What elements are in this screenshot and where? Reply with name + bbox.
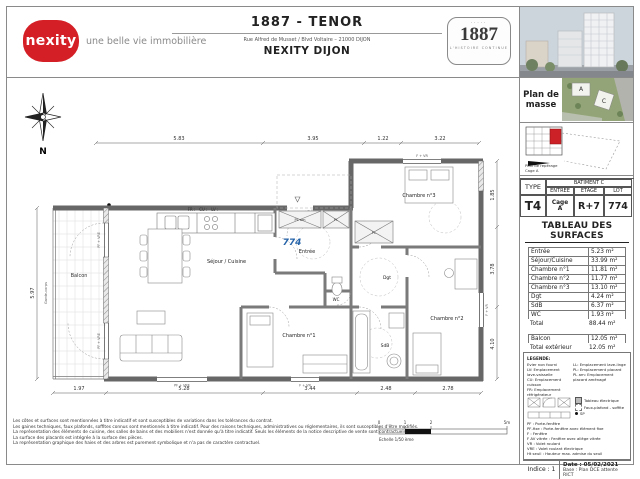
batiment-header-cell: BATIMENT C: [546, 179, 632, 187]
sp-icon: [575, 412, 578, 415]
etage-value: R+7: [574, 195, 604, 217]
legend-body: LEGENDE: Evier non fourni LV: Emplacemen…: [524, 353, 630, 459]
svg-text:3.22: 3.22: [434, 136, 445, 142]
svg-text:4.10: 4.10: [490, 338, 496, 349]
pl-am-label: PL am: [294, 218, 306, 222]
svg-text:3.95: 3.95: [307, 136, 318, 142]
svg-text:2.48: 2.48: [380, 386, 391, 392]
nexity-logo: nexity: [23, 20, 79, 62]
chambre3-label: Chambre n°3: [402, 193, 435, 199]
sejour-label: Séjour / Cuisine: [207, 258, 246, 265]
floor-plan-area: N 5.83 3.95 1.22 3.22 1.97 5.28 3.44: [7, 77, 519, 464]
badge-number: 1887: [448, 25, 510, 45]
svg-text:F + VR: F + VR: [299, 384, 311, 388]
sidebar: Plan de masse A C: [519, 7, 634, 464]
plan-masse-section: Plan de masse A C: [520, 78, 634, 123]
entry-direction-marker: [295, 197, 300, 202]
dgt-label: Dgt: [383, 275, 391, 281]
legend-title: LEGENDE:: [527, 356, 627, 361]
table-row: Chambre n°313.10 m²: [528, 283, 626, 292]
type-value: T4: [520, 195, 546, 217]
floor-plan-drawing: N 5.83 3.95 1.22 3.22 1.97 5.28 3.44: [7, 77, 519, 464]
balcony: Balcon Garde-corps: [44, 203, 111, 379]
legend-left-column: Evier non fourni LV: Emplacement lave-va…: [527, 362, 570, 397]
faux-plafond-icon: [575, 404, 582, 411]
svg-text:5.97: 5.97: [30, 287, 36, 298]
col-entree: ENTREE: [546, 187, 574, 195]
svg-text:3.78: 3.78: [490, 263, 496, 274]
svg-text:PF + VRE: PF + VRE: [174, 384, 190, 388]
sdb-label: SdB: [381, 343, 390, 349]
chambre1-label: Chambre n°1: [282, 333, 315, 339]
keyplan-section: Plan de repérage Cage A: [520, 123, 634, 176]
compass-north-icon: N: [25, 93, 61, 157]
plan-masse-aerial: A C: [562, 78, 633, 121]
table-row: WC1.93 m²: [528, 310, 626, 319]
legend-right-column: LL: Emplacement lave-linge PL: Emplaceme…: [573, 362, 627, 397]
table-row: SdB6.37 m²: [528, 301, 626, 310]
legend-symbol-drawings: [527, 397, 571, 420]
dining-table: [140, 229, 190, 283]
wc-label: WC: [333, 297, 340, 302]
svg-text:2.78: 2.78: [442, 386, 453, 392]
type-header-cell: TYPE: [520, 179, 546, 195]
table-row: Dgt4.24 m²: [528, 292, 626, 301]
badge-subtitle: L'HISTOIRE CONTINUE: [448, 46, 510, 50]
disclaimer-notes: Les côtes et surfaces sont mentionnées à…: [13, 419, 505, 447]
svg-text:PF + VRE: PF + VRE: [97, 232, 101, 248]
total-ext-row: Total extérieur12.05 m²: [528, 344, 626, 352]
sofa: [120, 311, 182, 361]
type-table: TYPE BATIMENT C ENTREE ETAGE LOT T4 Cage…: [520, 178, 634, 217]
lot-value: 774: [604, 195, 632, 217]
tableau-electrique-icon: [575, 397, 582, 404]
svg-text:1.22: 1.22: [377, 136, 388, 142]
legend-window-lines: PF : Porte-fenêtre PF-fixe : Porte-fenêt…: [527, 421, 627, 456]
landing-area: [277, 175, 351, 208]
title-block: 1887 - TENOR Rue Alfred de Musset / Blvd…: [172, 15, 442, 57]
balcon-label: Balcon: [71, 273, 88, 279]
lot-number-label: 774: [283, 238, 302, 248]
svg-text:1.97: 1.97: [73, 386, 84, 392]
garde-corps-label: Garde-corps: [44, 282, 48, 304]
entree-value: Cage A: [546, 195, 574, 217]
brand-1887-badge: ····· 1887 L'HISTOIRE CONTINUE: [447, 17, 511, 65]
chambre1-furniture: [247, 313, 347, 373]
surfaces-table: Entrée5.23 m² Séjour/Cuisine33.99 m² Cha…: [528, 247, 626, 352]
nexity-logo-text: nexity: [26, 33, 77, 49]
pl-label: PL: [334, 218, 338, 222]
table-row: Entrée5.23 m²: [528, 247, 626, 256]
svg-text:F + VR: F + VR: [485, 304, 489, 316]
col-lot: LOT: [604, 187, 632, 195]
svg-text:5.83: 5.83: [173, 136, 184, 142]
entree-label: Entrée: [299, 248, 315, 255]
surfaces-title: TABLEAU DES SURFACES: [525, 221, 629, 243]
legend-box: LEGENDE: Evier non fourni LV: Emplacemen…: [523, 352, 631, 461]
svg-text:F + VR: F + VR: [416, 154, 428, 158]
svg-text:1.85: 1.85: [490, 189, 496, 200]
keyplan-caption: Plan de repérage Cage A: [525, 164, 557, 173]
placard-symbols-icon: [527, 397, 571, 419]
svg-text:PF + VRE: PF + VRE: [97, 333, 101, 349]
masse-building-c-label: C: [602, 98, 606, 105]
page-title: 1887 - TENOR: [172, 15, 442, 30]
building-photo-image: [520, 7, 633, 77]
table-row: Chambre n°111.81 m²: [528, 265, 626, 274]
agency-name: NEXITY DIJON: [172, 45, 442, 57]
header: nexity une belle vie immobilière 1887 - …: [7, 7, 519, 78]
keyplan-highlighted-unit: [550, 129, 561, 144]
balcon-row: Balcon12.05 m²: [528, 334, 626, 343]
plan-sheet: nexity une belle vie immobilière 1887 - …: [6, 6, 634, 465]
legend-footer: Indice : 1 Date : 05/02/2021 Base : Plan…: [524, 459, 630, 479]
total-row: Total88.44 m²: [528, 320, 626, 328]
project-address: Rue Alfred de Musset / Blvd Voltaire – 2…: [172, 33, 442, 43]
north-label: N: [39, 147, 47, 157]
table-row: Chambre n°211.77 m²: [528, 274, 626, 283]
surfaces-section: TABLEAU DES SURFACES Entrée5.23 m² Séjou…: [520, 217, 634, 352]
chambre2-label: Chambre n°2: [430, 316, 463, 322]
col-etage: ETAGE: [574, 187, 604, 195]
pl-ch3-label: PL: [372, 231, 376, 235]
building-photo: [520, 7, 634, 78]
plan-masse-label: Plan de masse: [520, 78, 562, 122]
kitchen-appliance-labels: FR : CU : LV :: [188, 207, 219, 212]
table-row: Séjour/Cuisine33.99 m²: [528, 256, 626, 265]
